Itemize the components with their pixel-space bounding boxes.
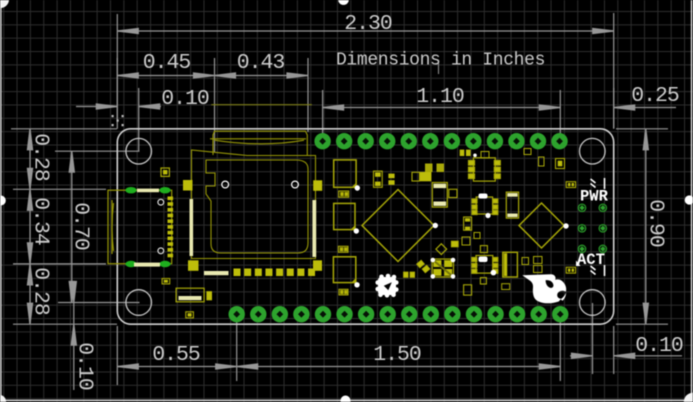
svg-text:0.45: 0.45 [143,51,191,75]
svg-text:0.28: 0.28 [29,267,53,315]
svg-text:0.55: 0.55 [152,343,200,367]
svg-text:PWR: PWR [580,188,609,206]
svg-text:0.10: 0.10 [161,87,209,111]
svg-text:0.70: 0.70 [69,202,93,250]
svg-text:1.50: 1.50 [373,343,421,367]
svg-text:1.10: 1.10 [416,85,464,109]
svg-text:0.10: 0.10 [73,342,97,390]
svg-text:0.43: 0.43 [237,51,285,75]
svg-text:0.90: 0.90 [644,199,668,247]
svg-text:0.34: 0.34 [29,197,53,245]
svg-text:0.25: 0.25 [631,84,679,108]
svg-text:0.10: 0.10 [635,334,683,358]
svg-text:2.30: 2.30 [344,12,392,36]
svg-text:0.28: 0.28 [29,133,53,181]
svg-text:Dimensions in Inches: Dimensions in Inches [336,50,545,70]
